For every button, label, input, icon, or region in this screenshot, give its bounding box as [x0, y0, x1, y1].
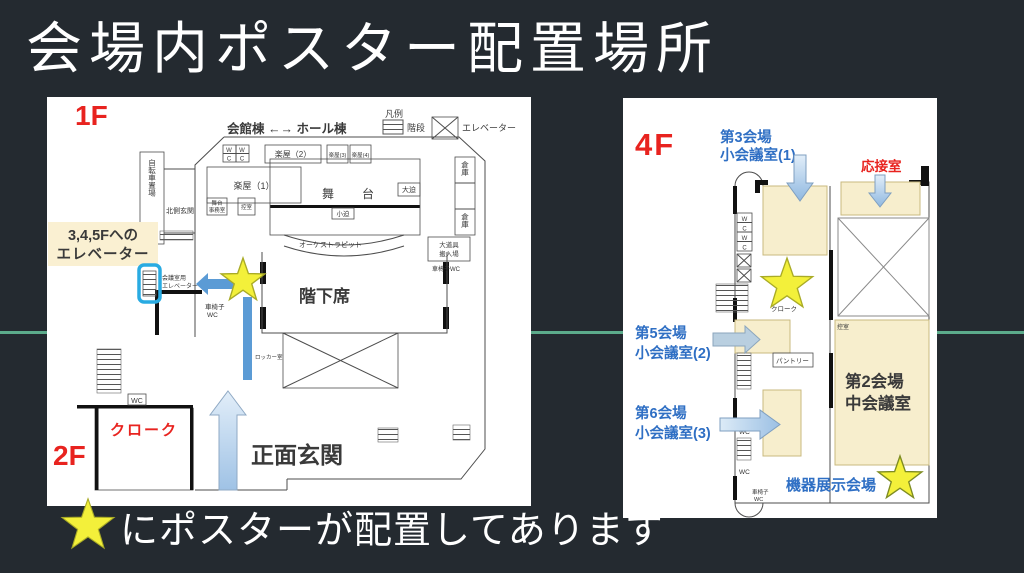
room-dressing3: 楽屋(3) [329, 151, 347, 159]
room-wheelchair-wc-right: 車椅子WC [432, 265, 461, 273]
room-wc-2: WC [739, 469, 750, 476]
svg-text:W: W [742, 236, 748, 242]
stairs-icon [97, 349, 121, 393]
svg-text:小会議室(3): 小会議室(3) [635, 424, 711, 442]
svg-text:W: W [742, 217, 748, 223]
wc-cells: W W C C [223, 145, 249, 163]
room-locker: ロッカー室 [255, 353, 283, 361]
room-north-entrance: 北側玄関 [166, 206, 194, 215]
room-orchestra-pit: オーケストラピット [299, 241, 362, 249]
room-wc: WC [131, 398, 143, 405]
svg-text:C: C [240, 157, 245, 163]
building-header: 会館棟 ←→ ホール棟 [227, 121, 347, 136]
floor-label-4f: 4F [635, 127, 675, 162]
stairs-icon [737, 438, 751, 460]
svg-text:C: C [227, 157, 232, 163]
room-dressing1: 楽屋（1） [233, 180, 274, 191]
floor-plan-1f-2f-svg: 1F 2F 会館棟 ←→ ホール棟 凡例 階段 エレベーター 自転車置場 W W… [47, 97, 531, 506]
venue2-label: 第2会場 [845, 371, 904, 391]
elevator-note-line1: 3,4,5Fへの [68, 228, 138, 244]
stairs-icon [160, 231, 193, 240]
cloak-label: クローク [110, 422, 178, 439]
svg-text:事務室: 事務室 [209, 206, 226, 214]
reception-label: 応接室 [861, 158, 902, 174]
svg-text:中会議室: 中会議室 [845, 393, 911, 413]
room-dressing4: 楽屋(4) [352, 151, 370, 159]
room-wheelchair-wc: 車椅子 [752, 488, 769, 496]
presentation-slide: 会場内ポスター配置場所 [0, 0, 1024, 573]
svg-text:W: W [239, 148, 245, 154]
room-dressing2: 楽屋（2） [275, 149, 311, 159]
room-props: 大道具 [439, 240, 459, 249]
cross-braced-hall [838, 218, 929, 316]
stairs-icon [716, 284, 748, 312]
stairs-icon [737, 353, 751, 389]
stairs-icon [378, 428, 398, 442]
room-cloak: クローク [771, 305, 797, 313]
service-cells [737, 254, 751, 282]
svg-text:W: W [226, 148, 232, 154]
cross-braced-area [283, 333, 398, 388]
svg-text:C: C [742, 227, 747, 233]
room-venue3 [763, 186, 827, 255]
elevator-legend-icon [432, 117, 458, 139]
room-stage-office: 舞台 [211, 199, 223, 207]
svg-text:小会議室(2): 小会議室(2) [635, 344, 711, 362]
wc-cells: W C W C [737, 213, 752, 252]
stairs-legend-icon [383, 120, 403, 134]
page-title: 会場内ポスター配置場所 [26, 4, 719, 85]
floor-plan-4f-svg: W C W C クローク 控室 パントリー WC WC 車椅子 WC 4F 第3… [623, 98, 937, 518]
arrow-up-icon [210, 391, 246, 490]
stage-label: 舞 [322, 187, 334, 201]
venue6-label: 第6会場 [635, 404, 687, 422]
room-anteroom: 控室 [241, 203, 253, 211]
room-small-lift: 小迫 [337, 209, 351, 218]
svg-text:エレベーター: エレベーター [162, 282, 198, 290]
exhibit-label: 機器展示会場 [786, 476, 876, 494]
floor-plan-4f: W C W C クローク 控室 パントリー WC WC 車椅子 WC 4F 第3… [623, 98, 937, 518]
stairs-icon [453, 425, 470, 440]
star-icon [761, 258, 812, 307]
floor-label-1f: 1F [75, 100, 108, 131]
room-wheelchair-wc-left: 車椅子 [205, 302, 225, 311]
room-pantry: パントリー [776, 357, 809, 365]
floor-label-2f: 2F [53, 440, 86, 471]
room-large-lift: 大迫 [402, 185, 416, 194]
route-line [243, 297, 252, 380]
footer-note: にポスターが配置してあります [56, 496, 664, 556]
room-lower-seats: 階下席 [299, 286, 350, 306]
room-storage-2: 倉庫 [460, 212, 469, 230]
svg-text:搬入場: 搬入場 [439, 249, 459, 258]
legend-title: 凡例 [385, 108, 403, 119]
svg-text:WC: WC [207, 312, 218, 319]
entrance-label: 正面玄関 [251, 442, 343, 468]
room-bicycle: 自転車置場 [147, 158, 156, 198]
svg-text:小会議室(1): 小会議室(1) [720, 146, 796, 164]
room-venue2 [835, 320, 929, 465]
room-storage-1: 倉庫 [460, 160, 469, 178]
legend-stairs: 階段 [407, 122, 425, 133]
svg-text:台: 台 [362, 186, 374, 201]
map-elevator-label: 会議室用 [162, 274, 186, 282]
room-anteroom: 控室 [837, 323, 849, 331]
floor-plan-1f-2f: 1F 2F 会館棟 ←→ ホール棟 凡例 階段 エレベーター 自転車置場 W W… [47, 97, 531, 506]
star-icon [56, 496, 120, 556]
star-icon [221, 258, 265, 300]
elevator-note-line2: エレベーター [57, 246, 150, 263]
legend-elevator: エレベーター [462, 123, 516, 133]
venue3-label: 第3会場 [720, 128, 772, 146]
svg-text:C: C [742, 246, 747, 252]
footer-text: にポスターが配置してあります [120, 499, 664, 554]
svg-text:WC: WC [754, 497, 763, 503]
venue5-label: 第5会場 [635, 324, 687, 342]
